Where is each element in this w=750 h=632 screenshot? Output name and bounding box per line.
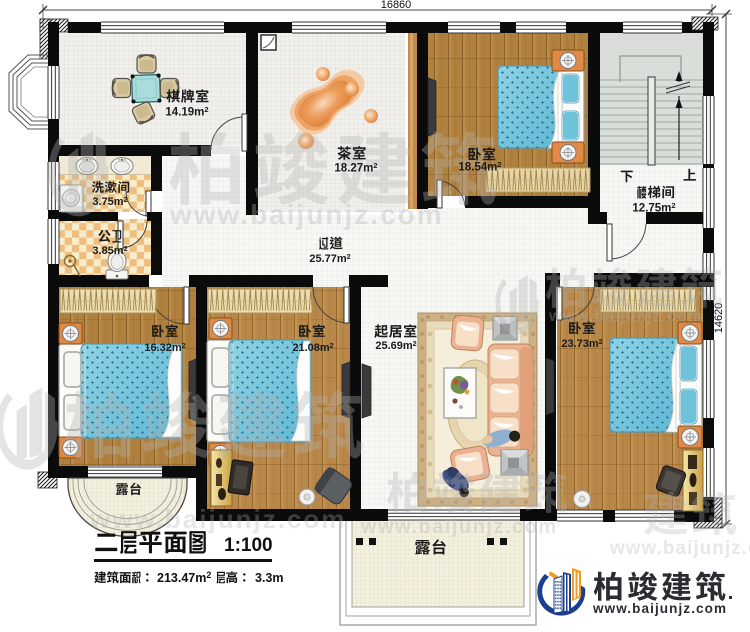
- svg-text:213.47m2: 213.47m2: [157, 570, 211, 585]
- svg-text:18.54m2: 18.54m2: [458, 160, 501, 173]
- svg-text:www.baijunjz.com: www.baijunjz.com: [360, 516, 558, 538]
- svg-text:21.08m2: 21.08m2: [292, 341, 333, 354]
- svg-text:25.77m2: 25.77m2: [309, 252, 350, 265]
- svg-text:25.69m2: 25.69m2: [375, 339, 416, 352]
- svg-text:3.85m2: 3.85m2: [92, 244, 127, 257]
- svg-text:23.73m2: 23.73m2: [561, 337, 602, 350]
- svg-text:1:100: 1:100: [224, 535, 273, 556]
- svg-text:16860: 16860: [381, 0, 412, 11]
- svg-text:www.baijunjz.com: www.baijunjz.com: [169, 199, 444, 230]
- svg-text:www.baijunjz.com: www.baijunjz.com: [89, 504, 346, 534]
- svg-text:12.75m2: 12.75m2: [632, 201, 675, 214]
- svg-text:18.27m2: 18.27m2: [334, 161, 377, 174]
- svg-text:3.3m: 3.3m: [255, 571, 284, 585]
- svg-text:www.baijunjz.com: www.baijunjz.com: [609, 538, 750, 559]
- svg-text:www.baijunjz.com: www.baijunjz.com: [592, 601, 727, 616]
- svg-text:3.75m2: 3.75m2: [92, 195, 127, 208]
- svg-text:14.19m2: 14.19m2: [165, 105, 208, 118]
- svg-text:16.32m2: 16.32m2: [144, 341, 185, 354]
